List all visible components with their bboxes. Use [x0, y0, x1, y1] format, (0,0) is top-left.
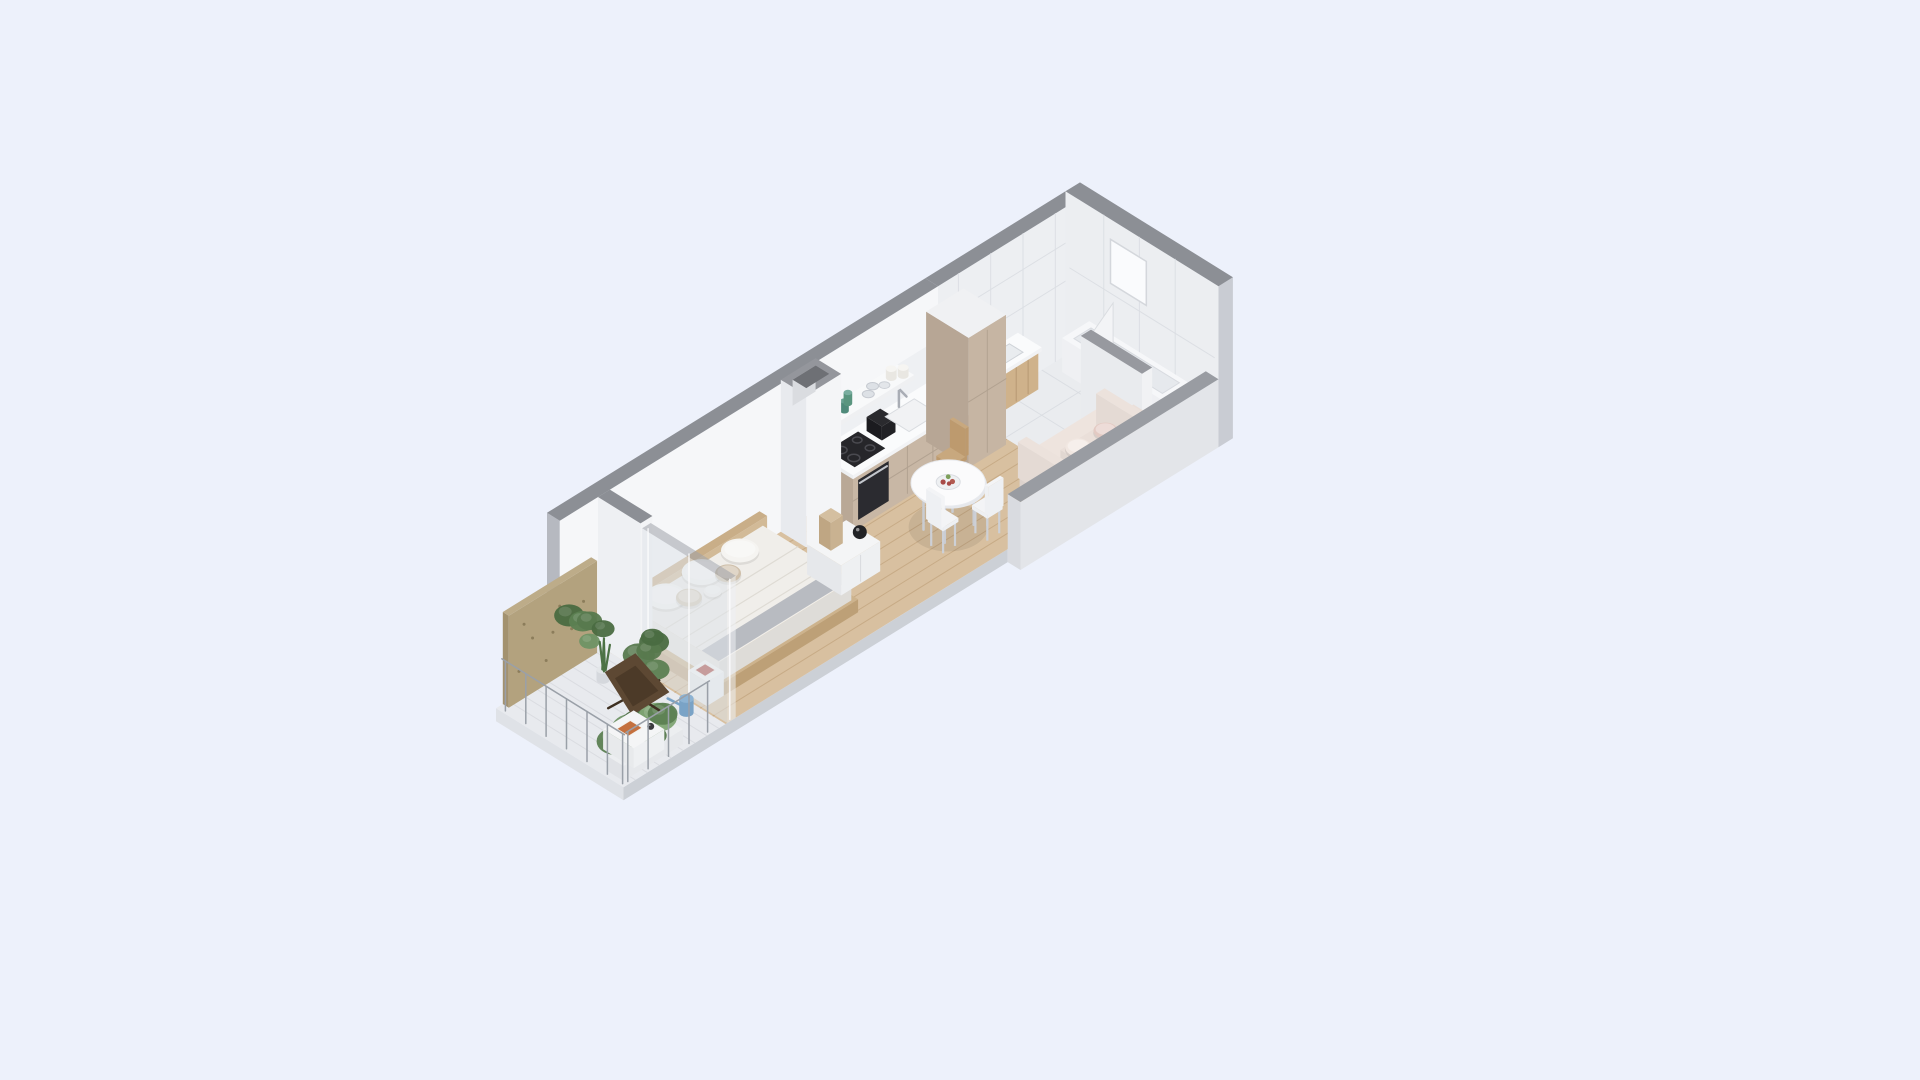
- dresser-lamp: [819, 508, 843, 551]
- shelf-candle-2: [898, 364, 909, 379]
- shelf-bowl-2: [867, 382, 879, 389]
- isometric-floorplan-render: [0, 0, 1920, 1080]
- shelf-jar-teal-3: [844, 390, 853, 406]
- bed-pillow-white-3: [721, 538, 760, 565]
- dresser-sphere-vase: [853, 525, 867, 539]
- isometric-floorplan-stage: [0, 0, 1920, 1080]
- shelf-candle-1: [886, 365, 897, 381]
- shelf-bowl-3: [879, 382, 890, 389]
- shelf-bowl-1: [862, 390, 874, 397]
